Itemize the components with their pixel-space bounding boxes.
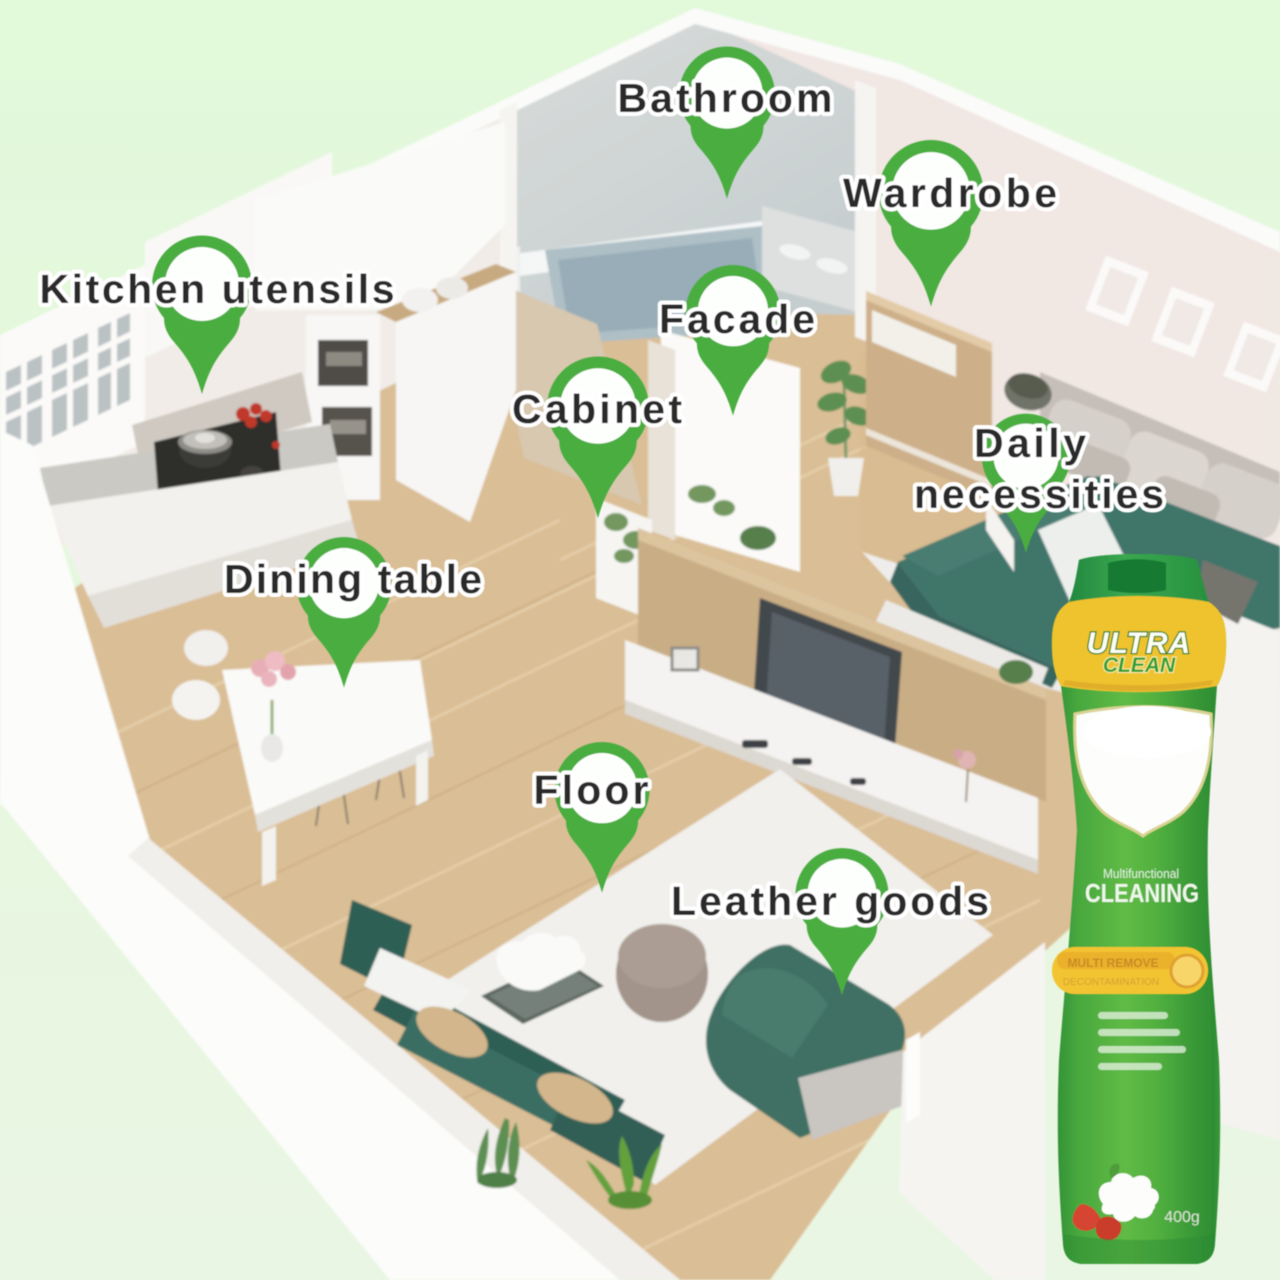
svg-text:CLEANING: CLEANING <box>1085 878 1199 908</box>
svg-text:Wardrobe: Wardrobe <box>843 170 1057 216</box>
svg-text:Bathroom: Bathroom <box>618 75 833 121</box>
svg-text:CLEAN: CLEAN <box>1103 654 1176 677</box>
svg-text:necessities: necessities <box>914 471 1164 517</box>
svg-text:Dining table: Dining table <box>224 556 482 602</box>
svg-text:400g: 400g <box>1164 1209 1200 1226</box>
svg-text:DECONTAMINATION: DECONTAMINATION <box>1063 977 1159 988</box>
svg-text:Leather goods: Leather goods <box>671 878 989 924</box>
svg-text:MULTI REMOVE: MULTI REMOVE <box>1067 956 1158 970</box>
